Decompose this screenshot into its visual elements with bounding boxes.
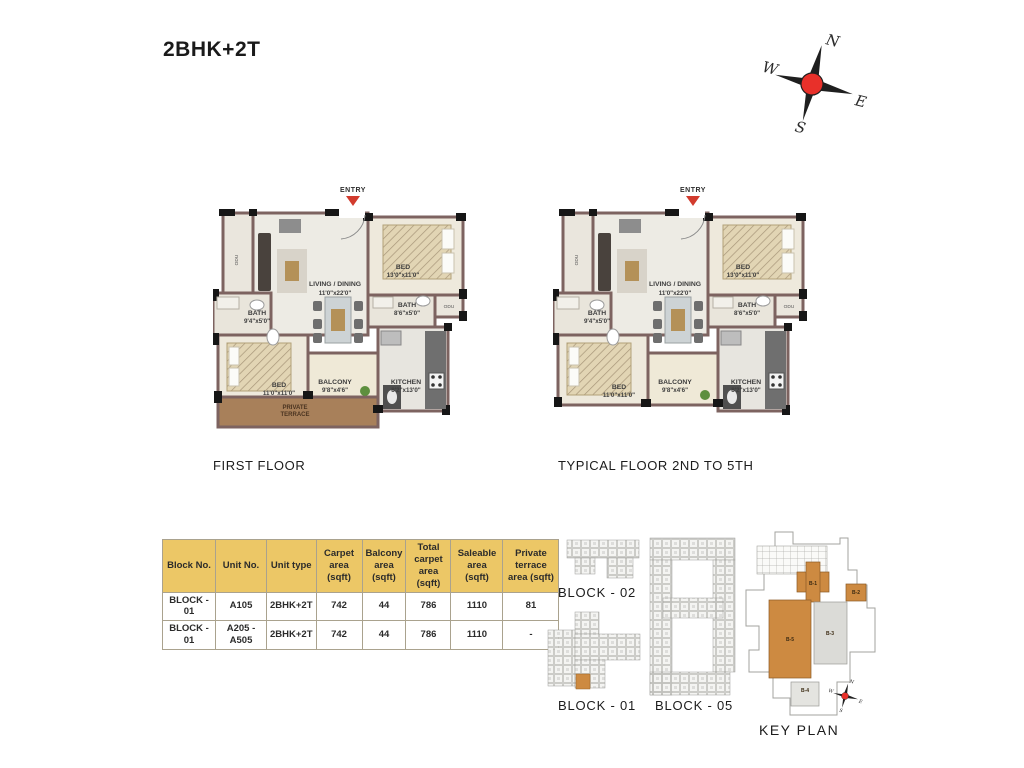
block-01-label: BLOCK - 01 bbox=[558, 698, 636, 713]
compass-arms: N E S W bbox=[755, 32, 870, 142]
bath1-dim: 9'4"x5'0" bbox=[584, 318, 610, 325]
cell-saleable: 1110 bbox=[451, 592, 503, 621]
block-02-cluster bbox=[567, 540, 639, 578]
svg-text:E: E bbox=[857, 699, 863, 706]
cell-total-carpet: 786 bbox=[406, 621, 451, 650]
compass-s: S bbox=[793, 117, 807, 137]
header-saleable-area: Saleable area (sqft) bbox=[451, 540, 503, 593]
bed1-label: BED bbox=[396, 264, 410, 271]
coffee-table bbox=[625, 261, 639, 281]
terrace-label-1: PRIVATE bbox=[282, 405, 307, 411]
entry-label: ENTRY bbox=[680, 187, 706, 194]
balcony-label: BALCONY bbox=[318, 379, 352, 386]
cell-type: 2BHK+2T bbox=[267, 621, 317, 650]
header-balcony-area: Balcony area (sqft) bbox=[362, 540, 406, 593]
floorplan-first-floor: ENTRY LIVING / DINING 11'0"x22'0" BED 13… bbox=[213, 183, 467, 437]
living-dim: 11'0"x22'0" bbox=[319, 290, 352, 297]
compass-rose: N E S W bbox=[755, 32, 870, 142]
block-01-cluster bbox=[548, 612, 640, 689]
bed1-dim: 13'0"x11'0" bbox=[727, 272, 760, 279]
bed1-dim: 13'0"x11'0" bbox=[387, 272, 420, 279]
entry-gap bbox=[339, 210, 365, 218]
living-dim: 11'0"x22'0" bbox=[659, 290, 692, 297]
block-05-label: BLOCK - 05 bbox=[655, 698, 733, 713]
area-table: Block No. Unit No. Unit type Carpet area… bbox=[162, 539, 559, 650]
svg-text:B-5: B-5 bbox=[786, 637, 794, 643]
keyplan-map: B-1 B-2 B-5 B-3 B-4 bbox=[746, 532, 875, 715]
balcony-plant bbox=[360, 386, 370, 396]
bed1-label: BED bbox=[736, 264, 750, 271]
odu-left-label: ODU bbox=[574, 254, 580, 265]
svg-text:B-1: B-1 bbox=[809, 581, 817, 587]
tv-unit bbox=[279, 219, 301, 233]
compass-e: E bbox=[852, 91, 868, 111]
sofa bbox=[598, 233, 611, 291]
table-row: BLOCK - 01 A205 - A505 2BHK+2T 742 44 78… bbox=[163, 621, 559, 650]
bath1-label: BATH bbox=[588, 310, 606, 317]
bed2-dim: 11'0"x11'0" bbox=[263, 390, 295, 397]
dining-set bbox=[313, 297, 363, 343]
balcony-dim: 9'8"x4'6" bbox=[322, 387, 348, 394]
entry-arrow bbox=[686, 196, 700, 206]
bed1-furniture bbox=[383, 225, 454, 279]
page-title: 2BHK+2T bbox=[163, 38, 260, 62]
cell-block: BLOCK - 01 bbox=[163, 592, 216, 621]
bed2-dim: 11'0"x11'0" bbox=[603, 392, 635, 399]
header-carpet-area: Carpet area (sqft) bbox=[316, 540, 362, 593]
terrace-label-2: TERRACE bbox=[280, 412, 309, 418]
caption-typical-floor: TYPICAL FLOOR 2ND TO 5TH bbox=[558, 458, 753, 473]
header-block-no: Block No. bbox=[163, 540, 216, 593]
bath2-dim: 8'6"x5'0" bbox=[734, 310, 760, 317]
dining-set bbox=[653, 297, 703, 343]
living-label: LIVING / DINING bbox=[309, 281, 361, 288]
keyplan-b5: B-5 bbox=[769, 600, 811, 678]
svg-text:B-2: B-2 bbox=[852, 590, 860, 596]
cell-unit: A205 - A505 bbox=[216, 621, 267, 650]
compass-center bbox=[799, 71, 826, 98]
cell-block: BLOCK - 01 bbox=[163, 621, 216, 650]
keyplan-b2: B-2 bbox=[846, 584, 866, 601]
balcony-dim: 9'8"x4'6" bbox=[662, 387, 688, 394]
floorplan-typical-floor: ENTRY LIVING / DINING 11'0"x22'0" BED 13… bbox=[553, 183, 807, 437]
odu-left-label: ODU bbox=[234, 254, 240, 265]
entry-arrow bbox=[346, 196, 360, 206]
svg-text:S: S bbox=[839, 708, 844, 715]
site-key-plan: BLOCK - 02 BLOCK - 01 BLOCK - 05 bbox=[545, 530, 880, 748]
cell-total-carpet: 786 bbox=[406, 592, 451, 621]
compass-w: W bbox=[761, 58, 782, 80]
svg-text:B-3: B-3 bbox=[826, 631, 834, 637]
kitchen-dim: 8'2"x13'0" bbox=[391, 387, 421, 394]
header-unit-type: Unit type bbox=[267, 540, 317, 593]
cell-balcony: 44 bbox=[362, 621, 406, 650]
svg-text:B-4: B-4 bbox=[801, 688, 809, 694]
keyplan-b3: B-3 bbox=[814, 602, 847, 664]
table-header-row: Block No. Unit No. Unit type Carpet area… bbox=[163, 540, 559, 593]
odu-right-label: ODU bbox=[784, 304, 795, 310]
bath2-label: BATH bbox=[398, 302, 416, 309]
header-unit-no: Unit No. bbox=[216, 540, 267, 593]
cell-balcony: 44 bbox=[362, 592, 406, 621]
brochure-page: 2BHK+2T N E S W bbox=[0, 0, 1024, 768]
table-row: BLOCK - 01 A105 2BHK+2T 742 44 786 1110 … bbox=[163, 592, 559, 621]
entry-label: ENTRY bbox=[340, 187, 366, 194]
block-01-highlight-unit bbox=[576, 674, 590, 689]
cell-carpet: 742 bbox=[316, 621, 362, 650]
sofa bbox=[258, 233, 271, 291]
cell-type: 2BHK+2T bbox=[267, 592, 317, 621]
block-02-label: BLOCK - 02 bbox=[558, 585, 636, 600]
block-05-cluster bbox=[650, 538, 735, 695]
cell-saleable: 1110 bbox=[451, 621, 503, 650]
kitchen-label: KITCHEN bbox=[391, 379, 421, 386]
coffee-table bbox=[285, 261, 299, 281]
bath1-dim: 9'4"x5'0" bbox=[244, 318, 270, 325]
living-label: LIVING / DINING bbox=[649, 281, 701, 288]
bath2-dim: 8'6"x5'0" bbox=[394, 310, 420, 317]
keyplan-b4: B-4 bbox=[791, 682, 819, 706]
bed2-label: BED bbox=[272, 382, 286, 389]
bed1-furniture bbox=[723, 225, 794, 279]
kitchen-label: KITCHEN bbox=[731, 379, 761, 386]
caption-first-floor: FIRST FLOOR bbox=[213, 458, 305, 473]
cell-unit: A105 bbox=[216, 592, 267, 621]
cell-carpet: 742 bbox=[316, 592, 362, 621]
balcony-plant bbox=[700, 390, 710, 400]
odu-right-label: ODU bbox=[444, 304, 455, 310]
bath1-label: BATH bbox=[248, 310, 266, 317]
compass-n: N bbox=[823, 32, 842, 51]
bed2-label: BED bbox=[612, 384, 626, 391]
tv-unit bbox=[619, 219, 641, 233]
bath2-label: BATH bbox=[738, 302, 756, 309]
keyplan-label: KEY PLAN bbox=[759, 722, 839, 738]
header-total-carpet-area: Total carpet area (sqft) bbox=[406, 540, 451, 593]
balcony-label: BALCONY bbox=[658, 379, 692, 386]
kitchen-dim: 8'2"x13'0" bbox=[731, 387, 761, 394]
entry-gap bbox=[679, 210, 705, 218]
